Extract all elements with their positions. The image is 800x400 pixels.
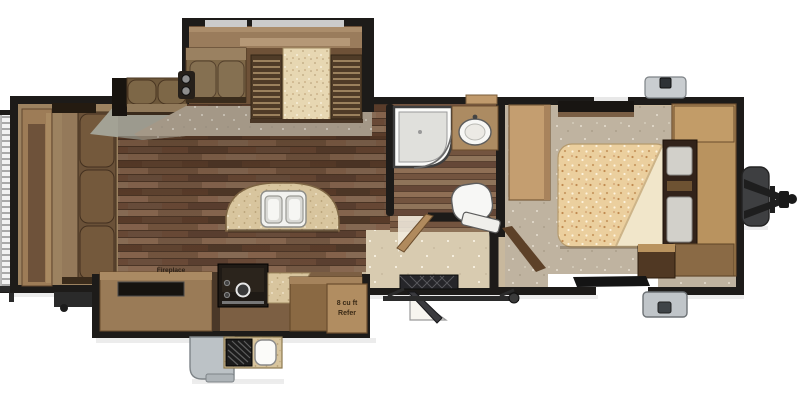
- svg-text:8 cu ft: 8 cu ft: [337, 300, 358, 307]
- svg-text:Refer: Refer: [338, 310, 356, 317]
- svg-text:Fireplace: Fireplace: [157, 267, 186, 274]
